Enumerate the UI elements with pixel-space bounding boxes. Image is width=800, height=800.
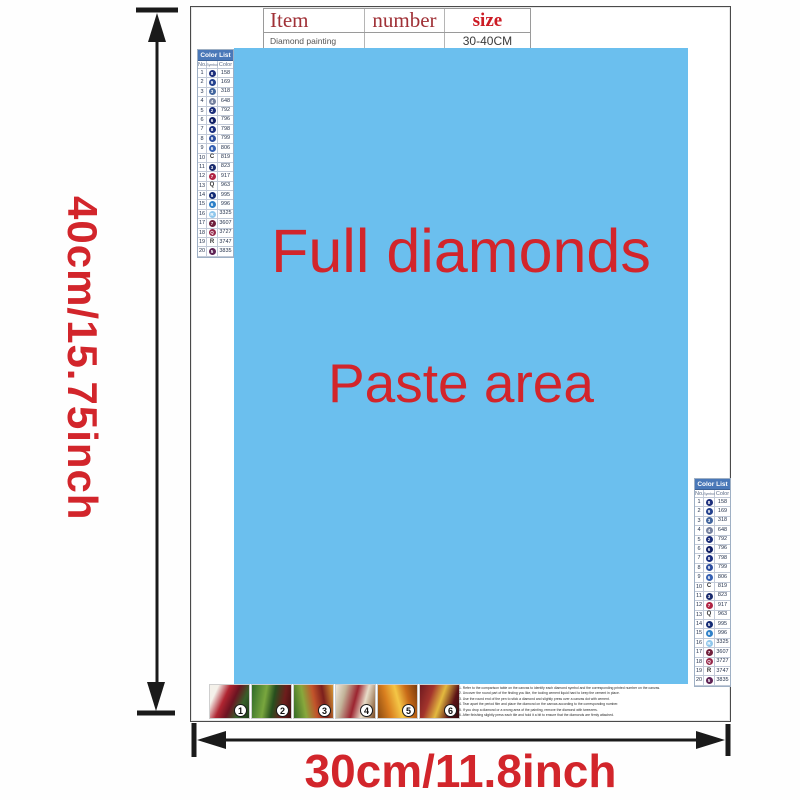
color-symbol: 2 bbox=[704, 536, 715, 544]
color-number: 4 bbox=[695, 526, 704, 534]
symbol-dot-icon: 7 bbox=[706, 649, 713, 656]
dmc-code: 318 bbox=[218, 87, 233, 96]
color-number: 20 bbox=[198, 247, 207, 255]
sample-thumbnail: 3 bbox=[293, 684, 334, 719]
dmc-code: 798 bbox=[218, 125, 233, 134]
symbol-dot-icon: 7 bbox=[706, 602, 713, 609]
symbol-dot-icon: 3 bbox=[209, 88, 216, 95]
dmc-code: 796 bbox=[715, 544, 730, 553]
color-symbol: R bbox=[704, 667, 715, 675]
dmc-code: 995 bbox=[218, 191, 233, 200]
dmc-code: 917 bbox=[218, 172, 233, 181]
color-symbol: R bbox=[207, 238, 218, 246]
thumbnail-number-badge: 3 bbox=[318, 704, 331, 717]
dmc-code: 158 bbox=[218, 69, 233, 78]
symbol-dot-icon: 3 bbox=[209, 164, 216, 171]
symbol-dot-icon: 6 bbox=[706, 630, 713, 637]
color-symbol: 7 bbox=[704, 648, 715, 656]
color-number: 14 bbox=[695, 620, 704, 628]
dmc-code: 996 bbox=[715, 629, 730, 638]
color-list-col-symbol: Symbol bbox=[207, 61, 218, 68]
symbol-dot-icon: 6 bbox=[706, 546, 713, 553]
symbol-dot-icon: 5 bbox=[209, 192, 216, 199]
dmc-code: 963 bbox=[218, 181, 233, 190]
product-size-diagram: 40cm/15.75inch 30cm/11.8inch Item number… bbox=[0, 0, 800, 800]
color-symbol: 7 bbox=[207, 219, 218, 227]
color-symbol: 5 bbox=[207, 191, 218, 199]
thumbnail-number-badge: 1 bbox=[234, 704, 247, 717]
dmc-code: 963 bbox=[715, 610, 730, 619]
symbol-dot-icon: 6 bbox=[209, 145, 216, 152]
symbol-dot-icon: 8 bbox=[706, 555, 713, 562]
color-number: 10 bbox=[695, 583, 704, 591]
paste-area: Full diamonds Paste area bbox=[234, 48, 688, 684]
color-symbol: 3 bbox=[207, 88, 218, 96]
dmc-code: 3607 bbox=[715, 648, 730, 657]
color-symbol: 9 bbox=[207, 135, 218, 143]
color-list-col-symbol: Symbol bbox=[704, 490, 715, 497]
item-info-table: Item number size Diamond painting 30-40C… bbox=[263, 8, 531, 50]
color-number: 3 bbox=[695, 517, 704, 525]
color-symbol: 2 bbox=[207, 107, 218, 115]
color-symbol: Q bbox=[704, 658, 715, 666]
sample-thumbnail-strip: 123456 bbox=[209, 684, 460, 719]
color-number: 9 bbox=[695, 573, 704, 581]
dmc-code: 823 bbox=[218, 162, 233, 171]
symbol-dot-icon: 4 bbox=[706, 527, 713, 534]
symbol-dot-icon: 6 bbox=[706, 574, 713, 581]
color-symbol: Q bbox=[207, 229, 218, 237]
dmc-code: 3727 bbox=[715, 657, 730, 666]
thumbnail-number-badge: 2 bbox=[276, 704, 289, 717]
dmc-code: 169 bbox=[715, 507, 730, 516]
thumbnail-number-badge: 5 bbox=[402, 704, 415, 717]
color-number: 2 bbox=[695, 507, 704, 515]
color-number: 10 bbox=[198, 154, 207, 162]
dmc-code: 3325 bbox=[715, 638, 730, 647]
color-number: 3 bbox=[198, 88, 207, 96]
symbol-dot-icon: 8 bbox=[209, 126, 216, 133]
dmc-code: 648 bbox=[715, 526, 730, 535]
symbol-dot-icon: R bbox=[706, 640, 713, 647]
color-list-row: 2053835 bbox=[695, 676, 730, 685]
color-list-left: Color List No. Symbol Color 181582916933… bbox=[197, 49, 234, 258]
color-symbol: 6 bbox=[704, 573, 715, 581]
dmc-code: 169 bbox=[218, 78, 233, 87]
color-number: 8 bbox=[695, 564, 704, 572]
sample-thumbnail: 5 bbox=[377, 684, 418, 719]
color-number: 15 bbox=[198, 200, 207, 208]
symbol-dot-icon: 2 bbox=[209, 107, 216, 114]
color-symbol: 5 bbox=[207, 247, 218, 255]
item-value-cell: Diamond painting bbox=[264, 33, 365, 49]
dmc-code: 806 bbox=[715, 573, 730, 582]
sample-thumbnail: 1 bbox=[209, 684, 250, 719]
symbol-dot-icon: 5 bbox=[209, 248, 216, 255]
color-symbol: 3 bbox=[704, 592, 715, 600]
dmc-code: 819 bbox=[715, 582, 730, 591]
item-table-header-row: Item number size bbox=[264, 9, 530, 32]
color-symbol: 5 bbox=[704, 620, 715, 628]
color-symbol: R bbox=[704, 639, 715, 647]
instructions-fineprint: 1. Refer to the comparison table on the … bbox=[459, 686, 695, 720]
color-symbol: 4 bbox=[207, 97, 218, 105]
dmc-code: 917 bbox=[715, 601, 730, 610]
paste-area-title: Full diamonds bbox=[234, 216, 688, 286]
dmc-code: 3835 bbox=[715, 676, 730, 685]
color-list-row: 2053835 bbox=[198, 247, 233, 256]
item-table-data-row: Diamond painting 30-40CM bbox=[264, 32, 530, 49]
symbol-dot-icon: 8 bbox=[209, 70, 216, 77]
canvas-sheet: Item number size Diamond painting 30-40C… bbox=[190, 6, 731, 722]
color-symbol: 3 bbox=[704, 517, 715, 525]
color-number: 13 bbox=[695, 611, 704, 619]
item-header-cell: Item bbox=[264, 9, 365, 32]
color-symbol: 6 bbox=[207, 144, 218, 152]
dmc-code: 799 bbox=[218, 134, 233, 143]
dmc-code: 648 bbox=[218, 97, 233, 106]
color-number: 8 bbox=[198, 135, 207, 143]
color-list-body: 1815829169333184464852792667967879889799… bbox=[695, 498, 730, 686]
color-number: 15 bbox=[695, 629, 704, 637]
color-symbol: 8 bbox=[207, 69, 218, 77]
symbol-dot-icon: 6 bbox=[209, 117, 216, 124]
color-symbol: Q bbox=[704, 611, 715, 619]
dmc-code: 792 bbox=[715, 535, 730, 544]
color-number: 12 bbox=[695, 601, 704, 609]
symbol-dot-icon: 9 bbox=[706, 508, 713, 515]
symbol-dot-icon: Q bbox=[706, 658, 713, 665]
color-symbol: 7 bbox=[704, 601, 715, 609]
symbol-dot-icon: 3 bbox=[706, 593, 713, 600]
color-number: 4 bbox=[198, 97, 207, 105]
color-symbol: C bbox=[207, 154, 218, 162]
height-arrow bbox=[136, 10, 178, 713]
color-number: 13 bbox=[198, 182, 207, 190]
symbol-dot-icon: 9 bbox=[209, 79, 216, 86]
color-symbol: 6 bbox=[207, 116, 218, 124]
dmc-code: 799 bbox=[715, 563, 730, 572]
color-number: 7 bbox=[695, 554, 704, 562]
dmc-code: 823 bbox=[715, 591, 730, 600]
color-symbol: 6 bbox=[704, 545, 715, 553]
dmc-code: 3835 bbox=[218, 247, 233, 256]
color-symbol: 9 bbox=[207, 78, 218, 86]
instruction-line: 6. After finishing slightly press each t… bbox=[459, 713, 695, 718]
color-list-col-color: Color bbox=[715, 490, 730, 497]
color-number: 6 bbox=[198, 116, 207, 124]
dmc-code: 996 bbox=[218, 200, 233, 209]
color-number: 18 bbox=[695, 658, 704, 666]
color-number: 12 bbox=[198, 172, 207, 180]
symbol-dot-icon: R bbox=[209, 211, 216, 218]
sample-thumbnail: 4 bbox=[335, 684, 376, 719]
symbol-dot-icon: 3 bbox=[706, 517, 713, 524]
color-symbol: 5 bbox=[704, 676, 715, 684]
color-number: 7 bbox=[198, 125, 207, 133]
width-dimension-label: 30cm/11.8inch bbox=[190, 744, 731, 798]
color-number: 17 bbox=[198, 219, 207, 227]
color-symbol: 6 bbox=[704, 629, 715, 637]
color-number: 5 bbox=[695, 536, 704, 544]
color-list-right: Color List No. Symbol Color 181582916933… bbox=[694, 478, 731, 687]
dmc-code: 3607 bbox=[218, 219, 233, 228]
sample-thumbnail: 6 bbox=[419, 684, 460, 719]
color-symbol: 4 bbox=[704, 526, 715, 534]
color-list-title: Color List bbox=[198, 50, 233, 61]
number-value-cell bbox=[365, 33, 445, 49]
dmc-code: 3747 bbox=[218, 238, 233, 247]
paste-area-subtitle: Paste area bbox=[234, 351, 688, 415]
color-list-col-color: Color bbox=[218, 61, 233, 68]
color-number: 18 bbox=[198, 229, 207, 237]
color-list-title: Color List bbox=[695, 479, 730, 490]
color-symbol: 9 bbox=[704, 564, 715, 572]
dmc-code: 806 bbox=[218, 144, 233, 153]
color-symbol: 8 bbox=[704, 498, 715, 506]
color-list-body: 1815829169333184464852792667967879889799… bbox=[198, 69, 233, 257]
sample-thumbnail: 2 bbox=[251, 684, 292, 719]
dmc-code: 3747 bbox=[715, 667, 730, 676]
thumbnail-number-badge: 4 bbox=[360, 704, 373, 717]
symbol-dot-icon: 2 bbox=[706, 536, 713, 543]
color-number: 6 bbox=[695, 545, 704, 553]
thumbnail-number-badge: 6 bbox=[444, 704, 457, 717]
color-number: 11 bbox=[198, 163, 207, 171]
height-dimension-label: 40cm/15.75inch bbox=[58, 196, 106, 556]
color-number: 5 bbox=[198, 107, 207, 115]
color-symbol: 8 bbox=[207, 125, 218, 133]
color-number: 11 bbox=[695, 592, 704, 600]
color-symbol: 3 bbox=[207, 163, 218, 171]
color-number: 19 bbox=[198, 238, 207, 246]
color-number: 1 bbox=[198, 69, 207, 77]
color-number: 16 bbox=[198, 210, 207, 218]
symbol-dot-icon: 7 bbox=[209, 173, 216, 180]
size-header-cell: size bbox=[445, 9, 530, 32]
color-symbol: C bbox=[704, 583, 715, 591]
color-symbol: 8 bbox=[704, 554, 715, 562]
color-symbol: 9 bbox=[704, 507, 715, 515]
color-number: 20 bbox=[695, 676, 704, 684]
color-number: 16 bbox=[695, 639, 704, 647]
symbol-dot-icon: 4 bbox=[209, 98, 216, 105]
symbol-dot-icon: 5 bbox=[706, 677, 713, 684]
dmc-code: 995 bbox=[715, 620, 730, 629]
dmc-code: 819 bbox=[218, 153, 233, 162]
color-number: 19 bbox=[695, 667, 704, 675]
number-header-cell: number bbox=[365, 9, 445, 32]
dmc-code: 318 bbox=[715, 516, 730, 525]
color-symbol: 7 bbox=[207, 172, 218, 180]
dmc-code: 158 bbox=[715, 498, 730, 507]
color-number: 2 bbox=[198, 78, 207, 86]
symbol-dot-icon: Q bbox=[209, 229, 216, 236]
symbol-dot-icon: 6 bbox=[209, 201, 216, 208]
dmc-code: 792 bbox=[218, 106, 233, 115]
dmc-code: 796 bbox=[218, 115, 233, 124]
color-number: 14 bbox=[198, 191, 207, 199]
symbol-dot-icon: 9 bbox=[706, 564, 713, 571]
size-value-cell: 30-40CM bbox=[445, 33, 530, 49]
symbol-dot-icon: 5 bbox=[706, 621, 713, 628]
dmc-code: 3325 bbox=[218, 209, 233, 218]
color-symbol: 6 bbox=[207, 200, 218, 208]
color-number: 1 bbox=[695, 498, 704, 506]
color-number: 17 bbox=[695, 648, 704, 656]
dmc-code: 798 bbox=[715, 554, 730, 563]
symbol-dot-icon: 9 bbox=[209, 135, 216, 142]
symbol-dot-icon: 8 bbox=[706, 499, 713, 506]
color-symbol: Q bbox=[207, 182, 218, 190]
color-symbol: R bbox=[207, 210, 218, 218]
dmc-code: 3727 bbox=[218, 228, 233, 237]
color-number: 9 bbox=[198, 144, 207, 152]
symbol-dot-icon: 7 bbox=[209, 220, 216, 227]
